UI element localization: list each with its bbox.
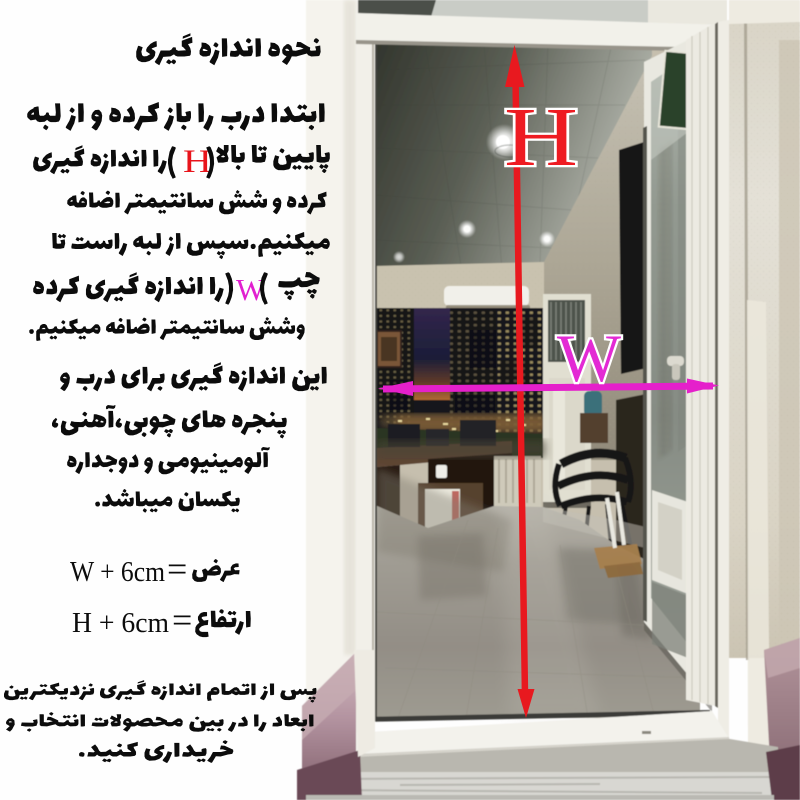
- svg-text:H: H: [504, 91, 578, 183]
- svg-text:W + 6cm: W + 6cm: [70, 557, 165, 588]
- svg-text:=: =: [167, 549, 187, 589]
- svg-text:H + 6cm: H + 6cm: [72, 608, 169, 639]
- svg-text:W: W: [557, 320, 622, 396]
- svg-text:=: =: [172, 600, 192, 640]
